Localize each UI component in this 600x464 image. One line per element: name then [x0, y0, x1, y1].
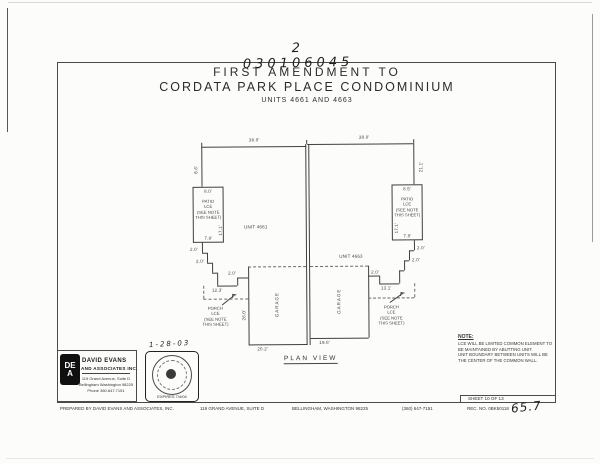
dim-label: 2.0': [371, 270, 379, 275]
porch-dashed-right: [368, 297, 414, 298]
scan-edge-top: [8, 2, 592, 3]
dim-label: 19.8': [310, 340, 340, 345]
firm-name: DAVID EVANS: [82, 358, 127, 364]
dim-label: 8.6': [193, 166, 198, 174]
sheet-box-line: [460, 395, 461, 402]
firm-address-2: Bellingham Washington 98225: [76, 382, 136, 387]
dim-label: 8.0': [194, 189, 223, 194]
firm-name-2: AND ASSOCIATES INC.: [81, 366, 138, 371]
floor-plan: 38.0' 38.0' 8.6' 21.1' 8.0' PATIOLCE (SE…: [189, 134, 441, 376]
wall-notch: [237, 277, 248, 278]
dim-label: 20.2': [248, 346, 278, 351]
unit-label-right: UNIT 4663: [335, 254, 367, 259]
wall-top-right-unit: [307, 143, 413, 145]
stamp-expires: EXPIRES 7/4/04: [148, 394, 196, 399]
wall-step: [217, 273, 218, 286]
dim-label: 12.3': [207, 288, 227, 293]
dim-label: 7.8': [194, 236, 223, 241]
dim-label: 17.1': [218, 225, 223, 236]
garage-label-left: GARAGE: [274, 292, 279, 317]
wall-top-left-unit: [201, 146, 306, 148]
footer-rec-no: REC. NO. 0BK50118: [467, 406, 509, 411]
dim-label: 13.1': [376, 285, 396, 290]
patio-label: PATIOLCE (SEE NOTETHIS SHEET): [393, 196, 422, 218]
garage-top-dashed-left: [248, 266, 306, 267]
dim-label: 26.0': [241, 310, 246, 321]
note-line: THE CENTER OF THE COMMON WALL.: [458, 358, 568, 364]
common-wall: [305, 144, 310, 345]
dim-label: 7.8': [393, 233, 422, 238]
note-line: LCE WILL BE LIMITED COMMON ELEMENT TO: [458, 341, 568, 347]
wall-step: [212, 263, 213, 273]
wall-step: [409, 250, 410, 260]
patio-lce-left: 8.0' PATIOLCE (SEE NOTETHIS SHEET) 17.1'…: [193, 187, 224, 243]
dim-label: 8.5': [393, 186, 422, 191]
footer-prepared-by: PREPARED BY DAVID EVANS AND ASSOCIATES, …: [60, 406, 174, 411]
garage-label-right: GARAGE: [336, 289, 341, 314]
porch-dashed-left: [203, 286, 204, 299]
porch-dashed-left: [203, 298, 248, 299]
footer-city: BELLINGHAM, WASHINGTON 98225: [292, 406, 368, 411]
dim-label: 38.0': [334, 134, 394, 139]
note-block: NOTE: LCE WILL BE LIMITED COMMON ELEMENT…: [458, 334, 568, 363]
garage-top-dashed-right: [310, 266, 368, 267]
garage-wall-left: [248, 266, 250, 344]
wall-step: [404, 260, 405, 270]
sheet-number: SHEET 10 OF 13: [468, 396, 504, 401]
firm-phone: Phone 360.647.7151: [76, 388, 136, 393]
footer-address: 119 GRAND AVENUE, SUITE D: [200, 406, 264, 411]
dim-label: 21.1': [418, 162, 423, 173]
handwritten-page-number: 65.7: [510, 398, 542, 415]
dim-label: 38.0': [224, 137, 284, 142]
garage-floor-left: [249, 344, 308, 345]
wall-step: [207, 253, 208, 263]
wall-step: [202, 243, 203, 253]
scan-edge-right: [592, 14, 593, 242]
scan-edge-bottom: [6, 458, 594, 459]
wall-step: [414, 240, 415, 250]
dim-label: 2.0': [190, 247, 198, 252]
dim-label: 2.0': [412, 257, 420, 262]
dim-label: 2.0': [196, 259, 204, 264]
dea-logo-text-bottom: A: [67, 370, 73, 378]
title-line-2: CORDATA PARK PLACE CONDOMINIUM: [107, 80, 507, 94]
title-units: UNITS 4661 AND 4663: [207, 97, 407, 104]
wall-run-left: [217, 286, 237, 287]
porch-dashed-right: [414, 283, 415, 297]
dim-label: 2.0': [228, 271, 236, 276]
patio-label: PATIOLCE (SEE NOTETHIS SHEET): [194, 199, 223, 221]
seal-emblem: [166, 369, 176, 379]
firm-address-1: 119 Grand Avenue, Suite D: [76, 376, 136, 381]
wall-right: [413, 143, 414, 184]
wall-notch: [368, 276, 379, 277]
title-line-1: FIRST AMENDMENT TO: [157, 65, 457, 79]
note-heading: NOTE:: [458, 334, 568, 340]
scan-edge-left: [7, 8, 8, 132]
firm-divider: [82, 373, 130, 374]
garage-floor-right: [311, 338, 369, 339]
scanned-plat-page: 2 030106045 FIRST AMENDMENT TO CORDATA P…: [0, 0, 600, 464]
porch-label-right: PORCHLCE (SEE NOTETHIS SHEET): [374, 304, 408, 326]
footer-phone: (360) 647-7151: [402, 406, 433, 411]
wall-left: [201, 147, 202, 187]
leader-arrow-left: [222, 295, 235, 306]
dim-label: 2.0': [417, 245, 425, 250]
dim-label: 17.1': [394, 223, 399, 234]
wall-step: [399, 270, 400, 283]
wall-notch: [237, 278, 238, 286]
plan-view-caption: PLAN VIEW: [276, 355, 346, 362]
wall-run-right: [379, 283, 399, 284]
wall-notch: [379, 276, 380, 284]
unit-label-left: UNIT 4661: [240, 224, 272, 229]
porch-label-left: PORCHLCE (SEE NOTETHIS SHEET): [198, 306, 232, 328]
patio-lce-right: 8.5' PATIOLCE (SEE NOTETHIS SHEET) 17.1'…: [392, 184, 423, 240]
